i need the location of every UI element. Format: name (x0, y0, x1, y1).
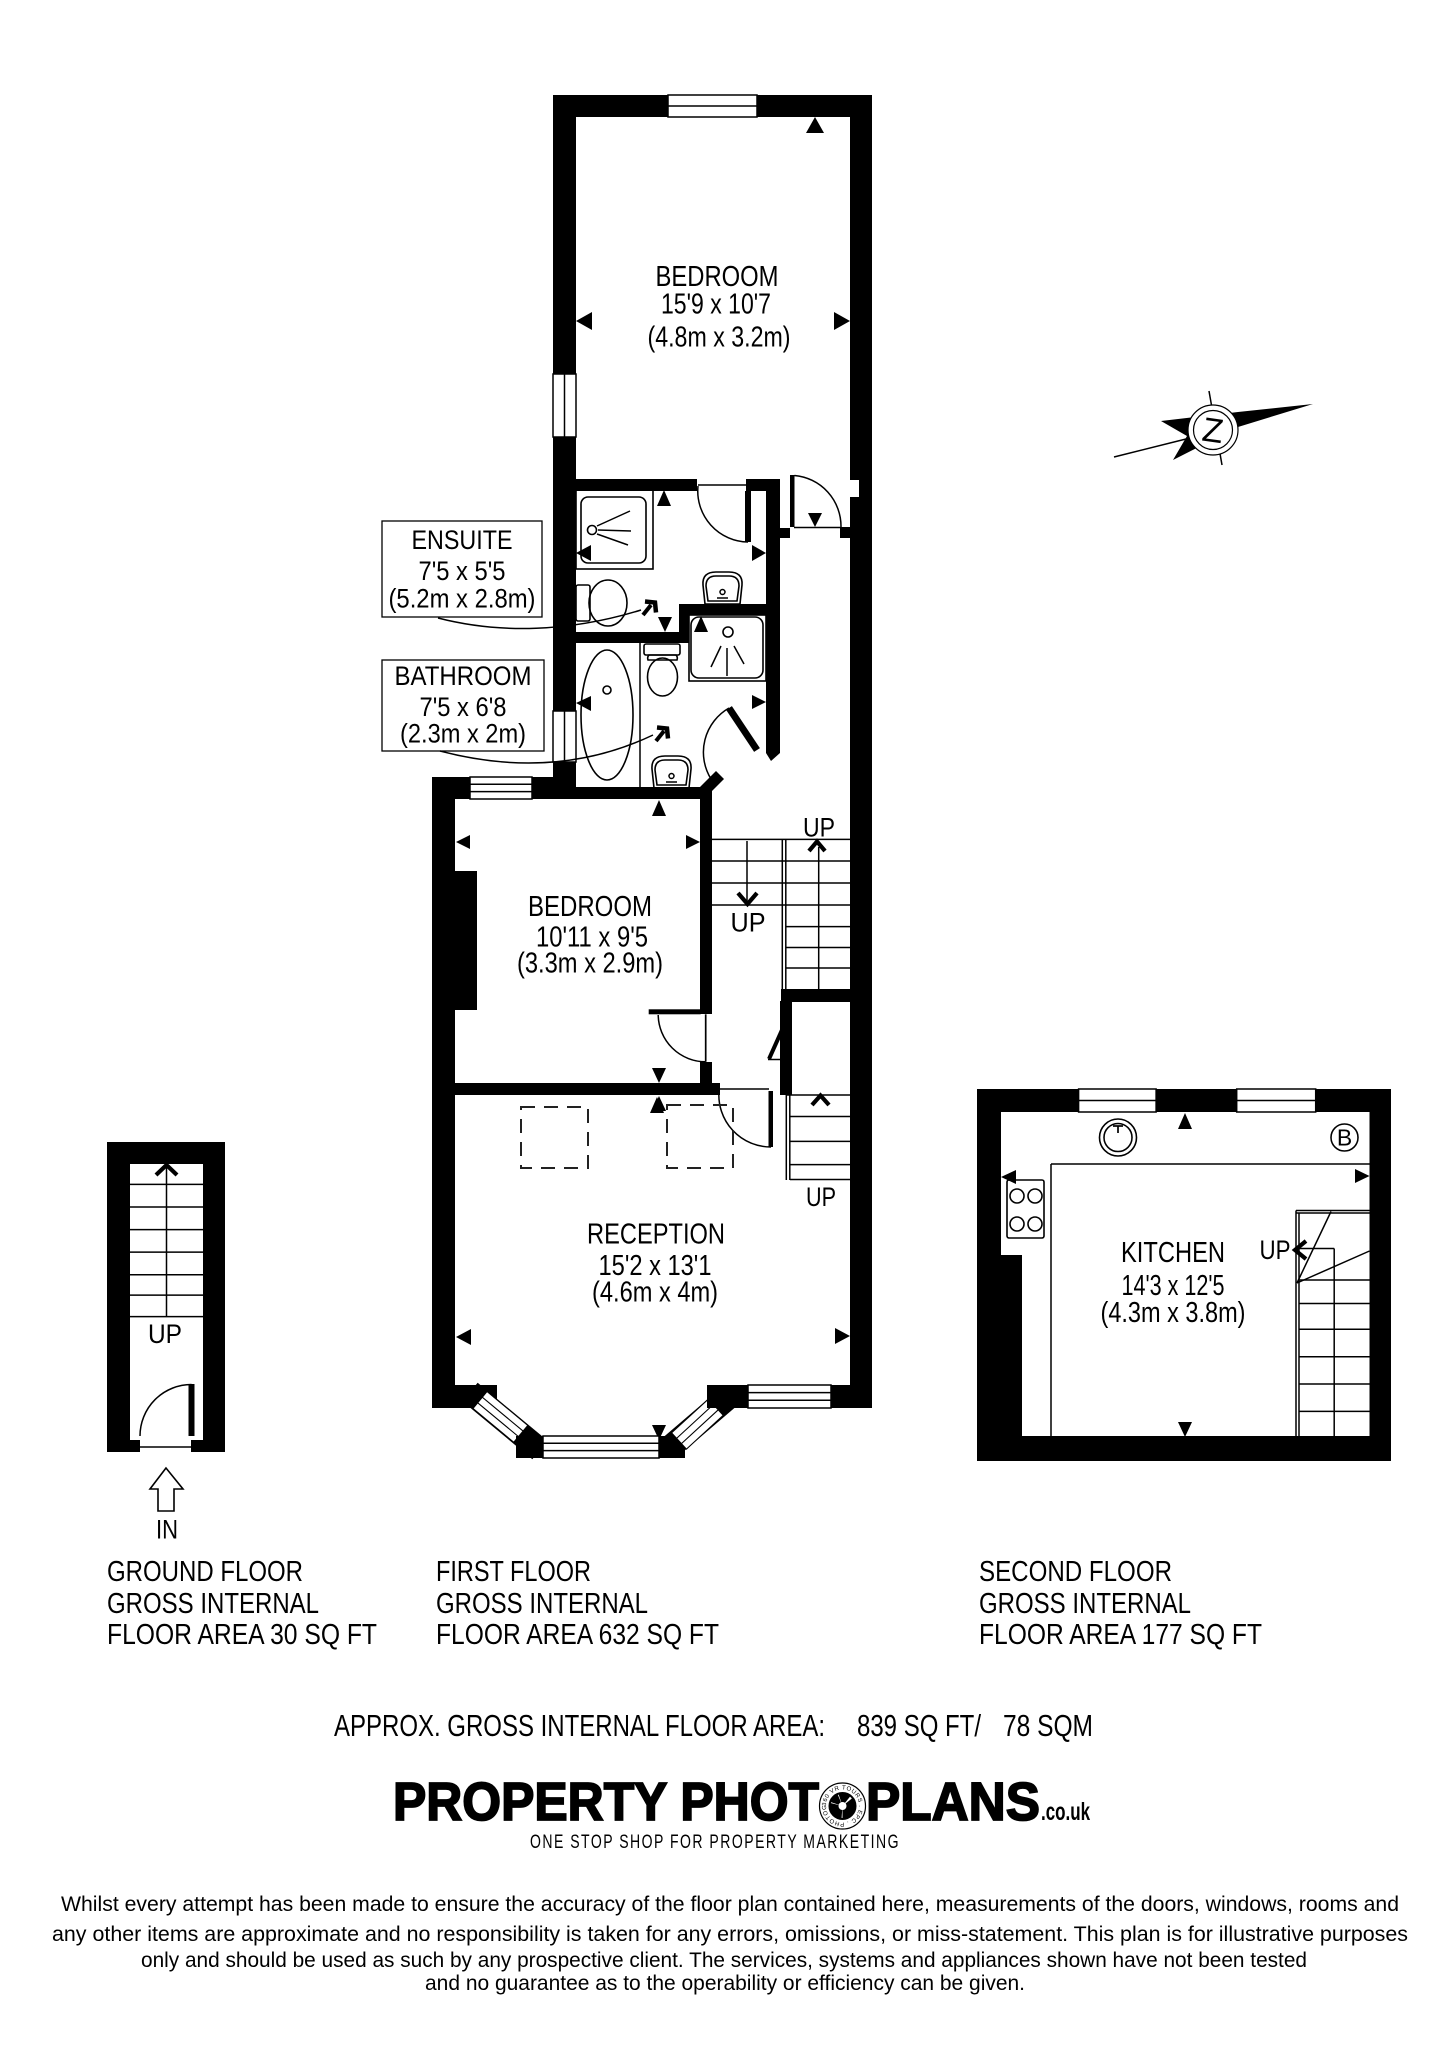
svg-text:15'9 x 10'7: 15'9 x 10'7 (661, 289, 771, 321)
svg-text:UP: UP (806, 1182, 836, 1212)
svg-text:KITCHEN: KITCHEN (1121, 1237, 1225, 1269)
svg-text:GROSS INTERNAL: GROSS INTERNAL (979, 1588, 1191, 1620)
svg-text:ENSUITE: ENSUITE (412, 525, 513, 555)
svg-text:and no guarantee as to the ope: and no guarantee as to the operability o… (425, 1971, 1025, 1995)
svg-text:UP: UP (1260, 1235, 1291, 1265)
svg-text:839 SQ FT/: 839 SQ FT/ (857, 1708, 981, 1743)
svg-text:ONE STOP SHOP FOR PROPERTY MAR: ONE STOP SHOP FOR PROPERTY MARKETING (530, 1832, 900, 1853)
svg-text:Whilst every attempt has been: Whilst every attempt has been made to en… (61, 1892, 1399, 1916)
svg-text:78 SQM: 78 SQM (1003, 1708, 1093, 1743)
svg-text:APPROX. GROSS INTERNAL FLOOR A: APPROX. GROSS INTERNAL FLOOR AREA: (334, 1708, 825, 1743)
svg-text:(4.8m x 3.2m): (4.8m x 3.2m) (648, 322, 791, 354)
svg-text:GROSS INTERNAL: GROSS INTERNAL (436, 1588, 648, 1620)
svg-text:(5.2m x 2.8m): (5.2m x 2.8m) (389, 584, 536, 614)
svg-text:7'5 x 6'8: 7'5 x 6'8 (420, 692, 507, 722)
svg-text:BEDROOM: BEDROOM (528, 891, 652, 923)
svg-text:GROUND FLOOR: GROUND FLOOR (107, 1556, 303, 1588)
svg-text:UP: UP (148, 1319, 182, 1349)
svg-text:only and should be used as suc: only and should be used as such by any p… (141, 1948, 1307, 1972)
svg-text:any other items are approximat: any other items are approximate and no r… (52, 1922, 1408, 1946)
svg-text:FIRST FLOOR: FIRST FLOOR (436, 1556, 591, 1588)
svg-text:IN: IN (156, 1515, 178, 1545)
svg-text:UP: UP (803, 813, 835, 843)
svg-text:BATHROOM: BATHROOM (395, 661, 532, 691)
svg-text:.co.uk: .co.uk (1041, 1798, 1090, 1826)
svg-text:SECOND FLOOR: SECOND FLOOR (979, 1556, 1172, 1588)
svg-text:PROPERTY PHOT: PROPERTY PHOT (393, 1772, 819, 1832)
svg-text:FLOOR AREA 177 SQ FT: FLOOR AREA 177 SQ FT (979, 1619, 1262, 1651)
svg-text:(2.3m x 2m): (2.3m x 2m) (400, 719, 526, 749)
svg-text:(3.3m x 2.9m): (3.3m x 2.9m) (517, 948, 663, 980)
svg-text:(4.6m x 4m): (4.6m x 4m) (592, 1277, 718, 1309)
svg-text:GROSS INTERNAL: GROSS INTERNAL (107, 1588, 319, 1620)
svg-text:B: B (1337, 1125, 1352, 1151)
svg-text:FLOOR AREA 30 SQ FT: FLOOR AREA 30 SQ FT (107, 1619, 377, 1651)
svg-text:RECEPTION: RECEPTION (587, 1219, 725, 1251)
svg-text:7'5 x 5'5: 7'5 x 5'5 (419, 556, 506, 586)
svg-text:FLOOR AREA 632 SQ FT: FLOOR AREA 632 SQ FT (436, 1619, 719, 1651)
svg-text:PLANS: PLANS (866, 1772, 1040, 1832)
svg-text:UP: UP (731, 908, 766, 938)
svg-text:(4.3m x 3.8m): (4.3m x 3.8m) (1101, 1297, 1246, 1329)
